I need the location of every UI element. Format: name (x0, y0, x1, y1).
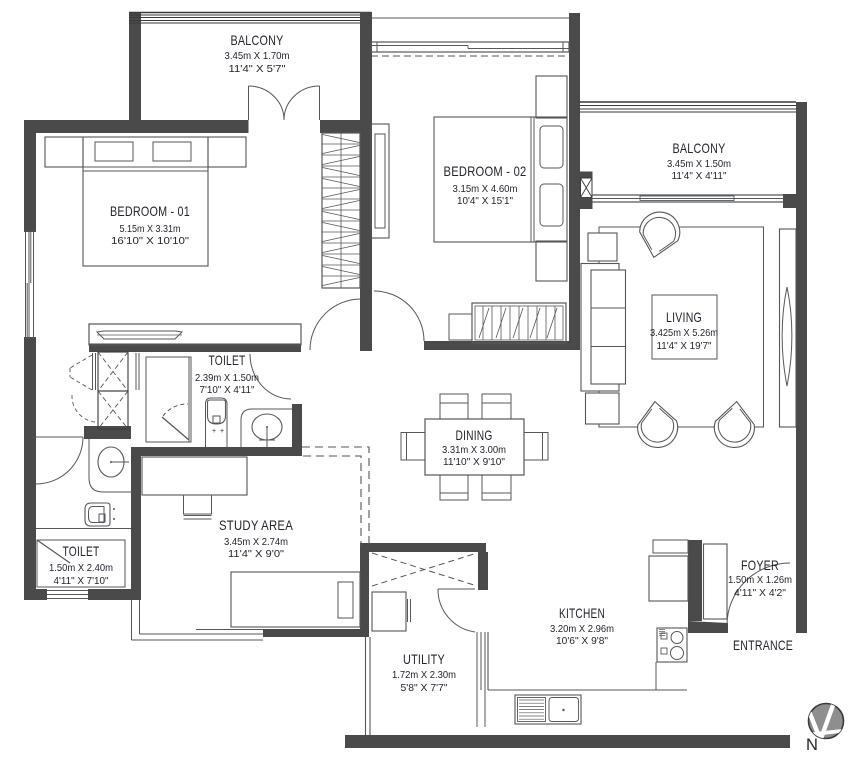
svg-text:BEDROOM - 01: BEDROOM - 01 (110, 203, 190, 219)
svg-text:DINING: DINING (456, 427, 493, 443)
svg-text:STUDY AREA: STUDY AREA (219, 517, 293, 533)
svg-text:5'8" X 7'7": 5'8" X 7'7" (401, 682, 448, 694)
svg-text:7'10" X 4'11": 7'10" X 4'11" (200, 384, 255, 396)
svg-text:2.39m X 1.50m: 2.39m X 1.50m (195, 372, 259, 384)
svg-text:3.45m X 1.50m: 3.45m X 1.50m (667, 158, 731, 170)
svg-text:11'4" X 4'11": 11'4" X 4'11" (672, 170, 727, 182)
svg-text:1.72m X 2.30m: 1.72m X 2.30m (392, 669, 456, 681)
svg-text:10'6" X 9'8": 10'6" X 9'8" (556, 635, 608, 647)
svg-text:5.15m X 3.31m: 5.15m X 3.31m (120, 223, 181, 235)
svg-text:N: N (806, 736, 818, 754)
svg-text:4'11" X 4'2": 4'11" X 4'2" (734, 587, 786, 599)
svg-text:11'4" X 19'7": 11'4" X 19'7" (657, 340, 712, 352)
svg-text:+: + (220, 428, 224, 435)
svg-text:TOILET: TOILET (209, 352, 246, 368)
svg-text:TOILET: TOILET (63, 543, 100, 559)
svg-text:11'4" X 5'7": 11'4" X 5'7" (229, 63, 286, 75)
svg-text:LIVING: LIVING (666, 309, 702, 325)
svg-text:1.50m X 2.40m: 1.50m X 2.40m (49, 562, 113, 574)
svg-text:16'10" X 10'10": 16'10" X 10'10" (111, 235, 189, 247)
svg-text:ENTRANCE: ENTRANCE (733, 637, 793, 653)
svg-text:3.31m X 3.00m: 3.31m X 3.00m (442, 444, 506, 456)
svg-text:3.20m X 2.96m: 3.20m X 2.96m (550, 623, 614, 635)
svg-text:BALCONY: BALCONY (231, 32, 284, 48)
svg-text:11'4" X 9'0": 11'4" X 9'0" (228, 548, 284, 560)
svg-text:BEDROOM - 02: BEDROOM - 02 (444, 163, 527, 179)
svg-text:UTILITY: UTILITY (403, 651, 445, 667)
svg-text:KITCHEN: KITCHEN (559, 605, 605, 621)
svg-text:3.15m X 4.60m: 3.15m X 4.60m (453, 183, 518, 195)
svg-text:3.45m X 1.70m: 3.45m X 1.70m (225, 50, 290, 62)
svg-text:+: + (212, 428, 216, 435)
svg-text:3.425m X 5.26m: 3.425m X 5.26m (650, 327, 718, 339)
svg-text:1.50m X 1.26m: 1.50m X 1.26m (728, 574, 792, 586)
svg-text:BALCONY: BALCONY (673, 140, 726, 156)
svg-text:FOYER: FOYER (741, 557, 779, 573)
svg-text:11'10" X 9'10": 11'10" X 9'10" (443, 456, 505, 468)
svg-text:4'11" X 7'10": 4'11" X 7'10" (54, 575, 109, 587)
svg-text:3.45m X 2.74m: 3.45m X 2.74m (224, 536, 288, 548)
svg-text:10'4" X 15'1": 10'4" X 15'1" (457, 195, 513, 207)
